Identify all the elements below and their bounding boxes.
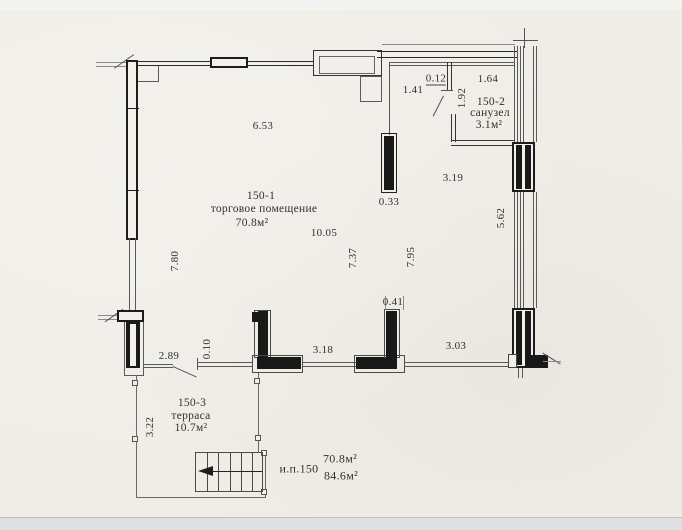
dim-left-wall-label: 7.80 [169,251,181,271]
window-break-line [127,190,139,193]
dim-extension-line [543,361,561,362]
corner-extension-line [524,28,525,48]
pier-fill [386,311,397,358]
stair-tread-line [230,453,231,491]
dim-room-depth-left-label: 7.37 [347,248,359,268]
room-main-id-label: 150-1 [247,190,275,202]
window-sash [516,145,522,189]
room-main-area-label: 70.8м² [236,217,269,229]
dim-tick [513,40,538,41]
opening-line [404,362,513,367]
stair-arrow-head-icon [198,466,213,476]
dim-pier-top-label: 0.33 [379,196,399,208]
dim-hall-width-label: 1.41 [403,84,423,96]
stair-tread-line [241,453,242,491]
dim-wc-width-label: 1.64 [478,73,498,85]
rail-post [254,378,260,384]
dim-extension-line [96,66,127,67]
dim-right-wall-label: 5.62 [495,208,507,228]
dim-room-width-label: 10.05 [311,227,337,239]
window-top-wall [210,57,248,68]
wall-right-middle [533,192,537,308]
pier-fill [257,357,301,369]
wall-right-middle [520,192,524,308]
pier-fill [384,136,394,190]
dim-top-width-label: 6.53 [253,120,273,132]
stair-tread-line [252,453,253,491]
room-terrace-area-label: 10.7м² [175,422,208,434]
wall-top-right [377,51,518,58]
wc-wall-stub [447,62,452,90]
window-break-line [127,108,139,111]
rail-post [255,435,261,441]
rail-post [132,436,138,442]
dim-wc-door-label: 1.92 [456,88,468,108]
stairs [195,452,263,492]
wall-right-upper [514,46,518,142]
dim-terrace-door-label: 2.89 [159,350,179,362]
terrace-rail-right [258,373,259,453]
room-wc-name-label: санузел [470,107,510,119]
corner-wall-bar [117,310,144,322]
outer-contour-line [382,44,515,45]
unit-area-total-label: 84.6м² [324,469,358,484]
door-threshold [143,364,173,368]
wall-right-upper [520,46,524,142]
door-leaf [173,366,197,377]
hall-divider-line [389,62,390,135]
window-corner [126,322,140,368]
wall-notch [137,66,159,82]
scan-top-edge [0,0,682,10]
room-main-name-label: торговое помещение [211,203,318,215]
wc-wall-bottom [451,140,515,146]
pier-fill [258,311,268,359]
window-sash [525,145,531,189]
unit-number-label: и.п.150 [280,462,319,477]
wall-right-middle [514,192,518,308]
bay-inner [319,56,375,74]
stair-arrow-shaft [211,471,262,472]
wall-inner-face [389,62,515,66]
rail-post [132,380,138,386]
wc-wall-lower [451,114,456,142]
dim-rail-label: 0.10 [201,339,213,359]
wall-left-lower [129,238,136,312]
dim-opening-left-label: 3.18 [313,344,333,356]
unit-area-main-label: 70.8м² [323,452,357,467]
rail-line [197,362,252,367]
dim-opening-right-label: 3.03 [446,340,466,352]
terrace-rail-bottom [136,497,266,498]
room-terrace-name-label: терраса [171,410,210,422]
floor-plan-scan: 6.53 1.41 0.12 1.64 1.92 3.19 0.33 5.62 … [0,0,682,530]
dim-partition-label: 0.12 [426,73,446,86]
window-left-wall [126,60,138,240]
dim-hall-depth-label: 3.19 [443,172,463,184]
wc-stub-cap [441,90,453,91]
stair-tread-line [218,453,219,491]
wall-stub-below [518,368,523,378]
dim-terrace-side-label: 3.22 [144,417,156,437]
room-terrace-id-label: 150-3 [178,397,206,409]
wall-right-upper [533,46,537,142]
opening-line [303,362,356,367]
room-wc-area-label: 3.1м² [476,119,503,131]
duct-shaft [360,76,382,102]
dim-pier-bottom-label: 0.41 [383,296,403,308]
scan-footer-band [0,517,682,530]
wc-door-leaf [433,96,444,117]
corner-outline [508,354,517,368]
pier-fill [356,357,397,369]
dim-room-depth-right-label: 7.95 [405,247,417,267]
